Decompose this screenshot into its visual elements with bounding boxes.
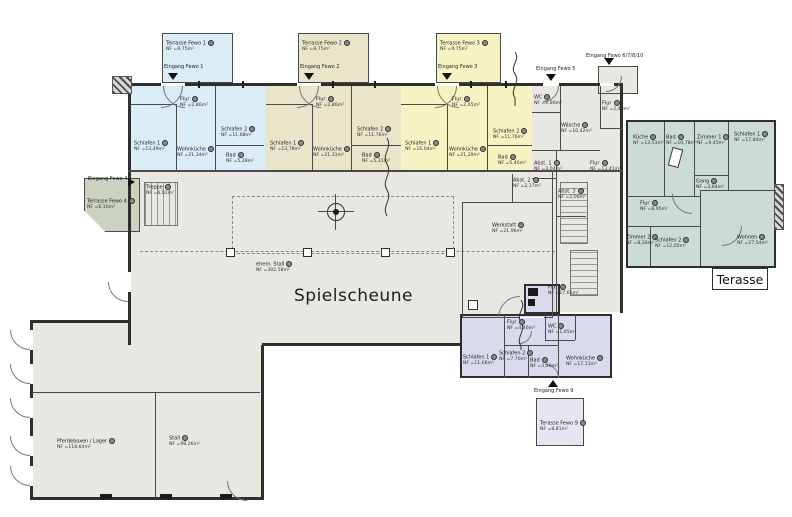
entrance-fewo9-label: Eingang Fewo 9 (534, 388, 574, 394)
room-label-wohnkueche-f1: Wohnküche NF =21,34m² (177, 146, 214, 158)
door-opening (30, 398, 33, 418)
room-label-waesche: Wäsche NF =10,42m² (561, 122, 592, 134)
wall (215, 145, 264, 146)
ref-marker-icon (554, 160, 560, 166)
wall (155, 392, 156, 497)
room-label-schlafen1-f10: Schlafen 1 NF =17,84m² (734, 131, 768, 143)
room-label-bad-f1: Bad NF =5,28m² (226, 152, 254, 164)
room-label-ehem-stall: ehem. Stall NF =392,58m² (256, 261, 292, 273)
column (381, 248, 390, 257)
room-label-wohnkueche-f2: Wohnküche NF =21,31m² (313, 146, 350, 158)
ref-marker-icon (344, 146, 350, 152)
terrasse-label: Terasse (717, 272, 764, 287)
entrance-fewo678-label: Eingang Fewo 6/7/8/10 (586, 53, 643, 59)
ref-marker-icon (162, 140, 168, 146)
room-label-flur-f10: Flur NF =8,95m² (640, 200, 668, 212)
fixture (528, 288, 538, 296)
ref-marker-icon (678, 134, 684, 140)
fixture (468, 300, 478, 310)
wall (700, 190, 776, 191)
ref-marker-icon (602, 160, 608, 166)
window-tick (332, 81, 334, 88)
ref-marker-icon (533, 177, 539, 183)
room-label-flur-f3: Flur NF =2,65m² (452, 96, 480, 108)
room-label-treppe: Treppe NF =6,02m² (146, 184, 174, 196)
wall (600, 128, 622, 129)
wall-pier (160, 494, 172, 499)
window-tick (198, 81, 200, 88)
wall (215, 86, 216, 170)
room-label-schlafen2-f3: Schlafen 2 NF =11,76m² (493, 128, 527, 140)
wall (545, 314, 546, 340)
wall (261, 345, 264, 500)
wall (504, 345, 558, 346)
wall (728, 122, 729, 190)
hatched-pier (112, 76, 132, 94)
entrance-arrow-icon (548, 380, 558, 387)
ref-marker-icon (560, 284, 566, 290)
room-label-stall: Stall NF =98,26m² (169, 435, 200, 447)
column (226, 248, 235, 257)
terrace-fewo4-label: Terrasse Fewo 4 NF =6,16m² (87, 198, 135, 210)
column (446, 248, 455, 257)
ref-marker-icon (510, 154, 516, 160)
wall (552, 172, 553, 318)
wall (176, 104, 177, 170)
entrance-fewo2-label: Eingang Fewo 2 (300, 64, 340, 70)
room-label-schlafen2-f10: Schlafen 2 NF =12,05m² (655, 237, 689, 249)
wall-pier (100, 494, 112, 499)
ref-marker-icon (558, 323, 564, 329)
ref-marker-icon (286, 261, 292, 267)
ref-marker-icon (385, 126, 391, 132)
window-tick (505, 81, 507, 88)
room-label-schlafen1-f1: Schlafen 1 NF =13,49m² (134, 140, 168, 152)
entrance-fewo4-label: Eingang Fewo 4 (88, 176, 128, 182)
window-tick (374, 81, 376, 88)
entrance-arrow-icon (168, 73, 178, 80)
wall (532, 150, 600, 151)
room-label-wc-f9: WC NF =1,65m² (548, 323, 576, 335)
room-label-schlafen1-f3: Schlafen 1 NF =16,04m² (405, 140, 439, 152)
terrace-fewo2-label: Terrasse Fewo 2 NF =9,75m² (302, 40, 350, 52)
wall (626, 226, 700, 227)
section-marker (508, 52, 522, 106)
door-opening (30, 466, 33, 486)
room-label-abst2: Abst. 2 NF =2,17m² (513, 177, 541, 189)
entrance-fewo3-label: Eingang Fewo 3 (438, 64, 478, 70)
ref-marker-icon (597, 355, 603, 361)
door-opening (161, 83, 185, 86)
wall (262, 343, 462, 346)
terrace-fewo1-label: Terrasse Fewo 1 NF =9,75m² (166, 40, 214, 52)
room-label-pferdeboxen: Pferdeboxen / Lager NF =118,64m² (57, 438, 115, 450)
ref-marker-icon (328, 96, 334, 102)
ref-marker-icon (238, 152, 244, 158)
window-tick (242, 81, 244, 88)
entrance-arrow-icon (442, 73, 452, 80)
ref-marker-icon (491, 354, 497, 360)
wall-pier (220, 494, 232, 499)
wall (32, 392, 260, 393)
wall (462, 202, 463, 318)
fixture (528, 299, 535, 306)
room-label-flur-f1: Flur NF =2,86m² (180, 96, 208, 108)
room-label-wohnkueche-f9: Wohnküche NF =17,11m² (566, 355, 603, 367)
wall (700, 190, 701, 266)
room-label-zimmer2: Zimmer 2 NF =8,28m² (626, 234, 658, 246)
ref-marker-icon (723, 134, 729, 140)
window-tick (470, 81, 472, 88)
wall (30, 320, 131, 323)
wall (600, 86, 601, 128)
floor-plan: Terasse (0, 0, 792, 517)
ref-marker-icon (711, 178, 717, 184)
room-label-zimmer1: Zimmer 1 NF =9,45m² (697, 134, 729, 146)
room-label-flur-f9: Flur NF =4,46m² (507, 319, 535, 331)
ref-marker-icon (129, 198, 135, 204)
hall-title: Spielscheune (294, 286, 413, 306)
ref-marker-icon (578, 188, 584, 194)
door-opening (30, 436, 33, 456)
barn-floor (30, 322, 262, 498)
column (303, 248, 312, 257)
wall (462, 202, 552, 203)
roof-outline-dashed (232, 196, 454, 254)
room-label-flur-corridor: Flur NF =13,41m² (590, 160, 621, 172)
room-label-abst3: Abst. 3 NF =2,08m² (558, 188, 586, 200)
room-label-bad-f9: Bad NF =3,20m² (530, 357, 558, 369)
ref-marker-icon (580, 420, 586, 426)
entrance-arrow-icon (604, 58, 614, 65)
room-label-flur-south: Flur NF =17,61m² (548, 284, 579, 296)
ref-marker-icon (192, 96, 198, 102)
room-label-schlafen1-f2: Schlafen 1 NF =13,78m² (270, 140, 304, 152)
ref-marker-icon (482, 40, 488, 46)
ref-marker-icon (480, 146, 486, 152)
door-opening (297, 83, 321, 86)
room-label-wohnkueche-f3: Wohnküche NF =21,29m² (449, 146, 486, 158)
ref-marker-icon (208, 146, 214, 152)
room-label-schlafen2-f1: Schlafen 2 NF =11,68m² (221, 126, 255, 138)
ref-marker-icon (344, 40, 350, 46)
room-label-abst1: Abst. 1 NF =3,04m² (534, 160, 562, 172)
center-column-dot (333, 209, 339, 215)
ref-marker-icon (249, 126, 255, 132)
ref-marker-icon (298, 140, 304, 146)
room-label-schlafen2-f9: Schlafen 2 NF =7,76m² (499, 350, 533, 362)
room-label-werkstatt: Werkstatt NF =21,96m² (492, 222, 524, 234)
terrace-fewo3-label: Terrasse Fewo 3 NF =9,75m² (440, 40, 488, 52)
terrasse-box: Terasse (712, 268, 768, 290)
ref-marker-icon (374, 152, 380, 158)
wall (545, 340, 575, 341)
room-label-schlafen2-f2: Schlafen 2 NF =11,76m² (357, 126, 391, 138)
ref-marker-icon (683, 237, 689, 243)
wall (650, 226, 651, 266)
room-label-wohnen: Wohnen NF =27,54m² (737, 234, 768, 246)
room-label-wc-service: WC NF =0,86m² (534, 94, 562, 106)
beam-line-dashed (140, 251, 555, 253)
wall (128, 83, 131, 345)
door-opening (30, 364, 33, 384)
wall (694, 175, 728, 176)
wall (487, 86, 488, 170)
wall (487, 145, 532, 146)
entrance-arrow-icon (546, 74, 556, 81)
entrance-arrow-icon (128, 178, 135, 186)
door-opening (543, 83, 559, 86)
ref-marker-icon (518, 222, 524, 228)
ref-marker-icon (582, 122, 588, 128)
room-label-flur-small: Flur NF =2,48m² (602, 100, 630, 112)
entrance-fewo1-label: Eingang Fewo 1 (164, 64, 204, 70)
entrance-arrow-icon (304, 73, 314, 80)
door-opening (30, 330, 33, 350)
terrace-fewo9-label: Terasse Fewo 9 NF =8,81m² (540, 420, 586, 432)
room-label-bad-f2: Bad NF =5,31m² (362, 152, 390, 164)
ref-marker-icon (165, 184, 171, 190)
wall (504, 314, 505, 378)
room-label-bad-f3: Bad NF =5,46m² (498, 154, 526, 166)
room-label-gang: Gang NF =3,64m² (696, 178, 724, 190)
wall (532, 112, 560, 113)
room-label-kueche: Küche NF =13,51m² (633, 134, 664, 146)
wall (312, 104, 313, 170)
ref-marker-icon (182, 435, 188, 441)
wall (351, 86, 352, 170)
room-label-flur-f2: Flur NF =2,86m² (316, 96, 344, 108)
ref-marker-icon (527, 350, 533, 356)
room-label-schlafen1-f9: Schlafen 1 NF =11,66m² (463, 354, 497, 366)
ref-marker-icon (433, 140, 439, 146)
door-opening (435, 83, 459, 86)
room-label-bad-f10: Bad NF =10,78m² (666, 134, 697, 146)
wall (664, 122, 665, 196)
ref-marker-icon (208, 40, 214, 46)
wall (447, 104, 448, 170)
entrance-fewo5-label: Eingang Fewo 5 (536, 66, 576, 72)
ref-marker-icon (542, 357, 548, 363)
section-marker (380, 138, 394, 216)
ref-marker-icon (521, 128, 527, 134)
ref-marker-icon (652, 200, 658, 206)
ref-marker-icon (762, 131, 768, 137)
ref-marker-icon (650, 134, 656, 140)
ref-marker-icon (759, 234, 765, 240)
wall (620, 83, 623, 313)
ref-marker-icon (464, 96, 470, 102)
ref-marker-icon (519, 319, 525, 325)
ref-marker-icon (544, 94, 550, 100)
ref-marker-icon (109, 438, 115, 444)
ref-marker-icon (614, 100, 620, 106)
door-opening (128, 272, 131, 292)
